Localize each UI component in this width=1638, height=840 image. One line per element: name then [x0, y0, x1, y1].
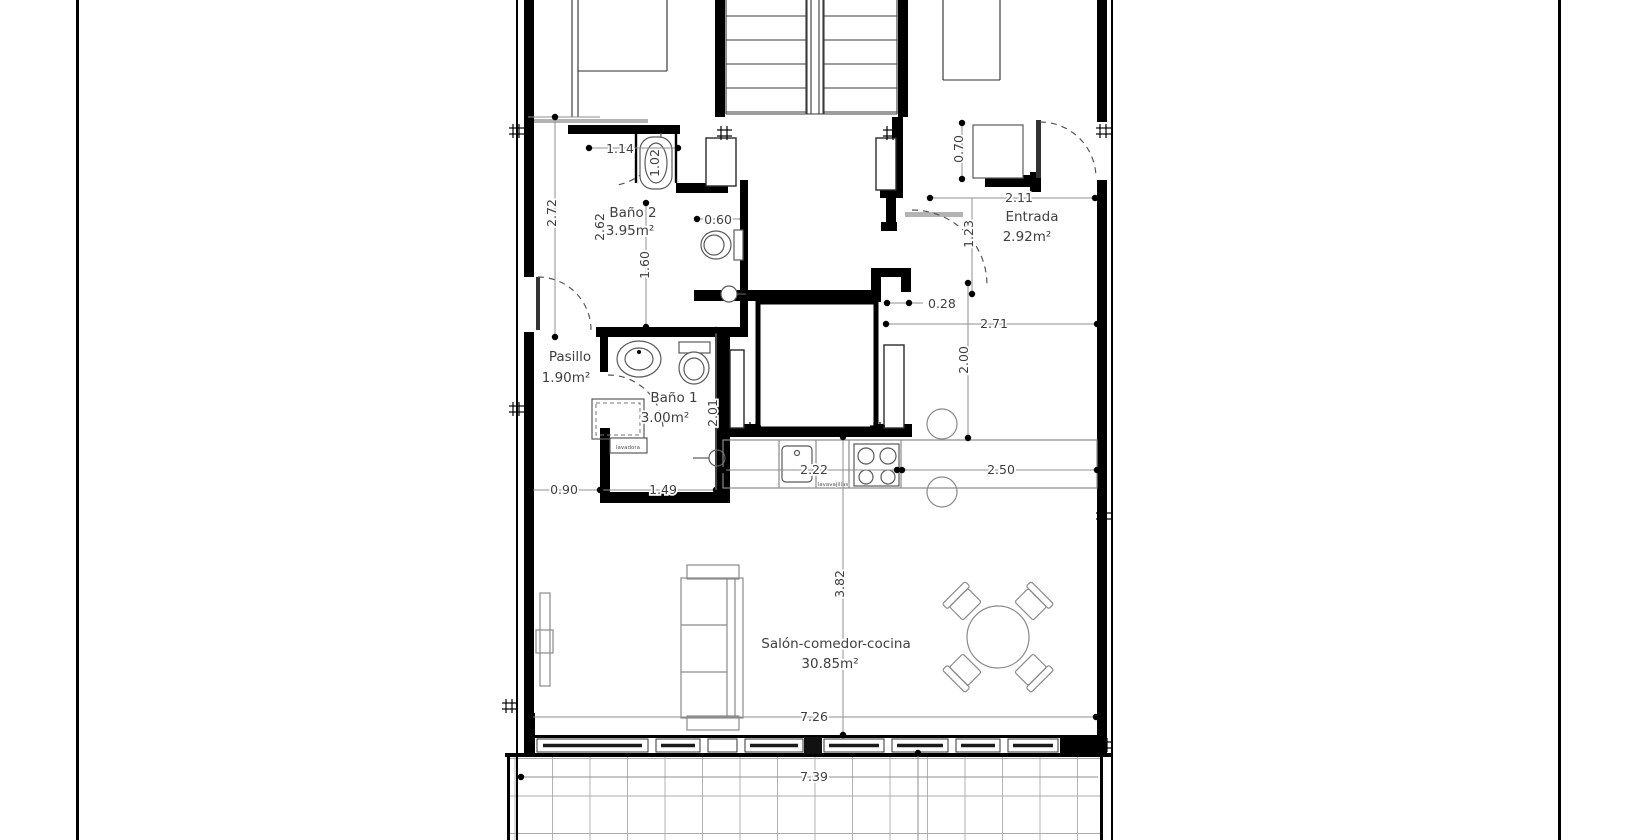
terrace-window-band — [505, 735, 1111, 757]
room-area-bano2: 3.95m² — [606, 223, 655, 239]
dishwasher-label: lavavajillas — [818, 482, 849, 488]
chair-icon — [942, 581, 983, 622]
dim-2-00: 2.00 — [956, 346, 971, 374]
upper-partitions — [572, 0, 1000, 117]
dim-1-60: 1.60 — [637, 251, 652, 279]
dim-3-82: 3.82 — [832, 570, 847, 598]
room-label-entrada: Entrada — [1005, 209, 1058, 225]
dim-1-49: 1.49 — [649, 482, 677, 497]
tv-unit-icon — [540, 593, 550, 686]
dim-0-90: 0.90 — [550, 482, 578, 497]
corner-basin-icon — [721, 286, 737, 302]
dim-2-50: 2.50 — [987, 462, 1015, 477]
stool-icon — [927, 409, 957, 439]
hatch-icon — [502, 699, 517, 713]
dim-2-71: 2.71 — [980, 316, 1008, 331]
room-label-bano2: Baño 2 — [609, 205, 656, 221]
dim-2-72: 2.72 — [544, 199, 559, 227]
floor-plan: lavadora lavavajillas — [0, 0, 1638, 840]
sofa-icon — [681, 578, 743, 718]
entrance-door-leaf — [1036, 120, 1041, 178]
washbasin-icon — [617, 341, 661, 377]
dining-table-icon — [967, 606, 1029, 668]
room-area-salon: 30.85m² — [801, 656, 858, 672]
dim-0-70: 0.70 — [951, 135, 966, 163]
entrance-door-arc — [1040, 122, 1096, 178]
staircase — [715, 0, 908, 117]
toilet1-tank-icon — [679, 342, 710, 353]
room-area-pasillo: 1.90m² — [542, 370, 591, 386]
dim-0-60: 0.60 — [704, 212, 732, 227]
dim-7-26: 7.26 — [800, 709, 828, 724]
room-label-salon: Salón-comedor-cocina — [761, 636, 911, 652]
chair-icon — [942, 652, 983, 693]
dim-7-39: 7.39 — [800, 769, 828, 784]
wall-niches — [706, 125, 1023, 190]
dim-2-22: 2.22 — [800, 462, 828, 477]
pasillo-door-leaf — [536, 277, 540, 330]
drawing-sheet: lavadora lavavajillas — [0, 0, 1638, 840]
room-area-entrada: 2.92m² — [1003, 229, 1052, 245]
room-label-pasillo: Pasillo — [549, 349, 591, 365]
door-track-block — [804, 737, 822, 754]
dim-1-02: 1.02 — [647, 149, 662, 177]
washer-label: lavadora — [616, 445, 640, 451]
room-area-bano1: 3.00m² — [641, 410, 690, 426]
dim-2-11: 2.11 — [1005, 190, 1033, 205]
shower-tray-icon — [592, 399, 644, 439]
toilet2-tank-icon — [734, 230, 743, 260]
chair-icon — [1013, 581, 1054, 622]
dim-1-14: 1.14 — [606, 141, 634, 156]
room-label-bano1: Baño 1 — [650, 390, 697, 406]
dim-0-28: 0.28 — [928, 296, 956, 311]
elevator-shaft — [730, 302, 904, 429]
dim-2-01: 2.01 — [705, 399, 720, 427]
sofa-armrest — [687, 565, 739, 579]
hatch-icon — [1096, 124, 1111, 138]
dim-1-23: 1.23 — [961, 220, 976, 248]
entry-closet — [973, 125, 1023, 178]
pasillo-door-arc — [538, 277, 591, 330]
stool-icon — [927, 477, 957, 507]
chair-icon — [1013, 652, 1054, 693]
